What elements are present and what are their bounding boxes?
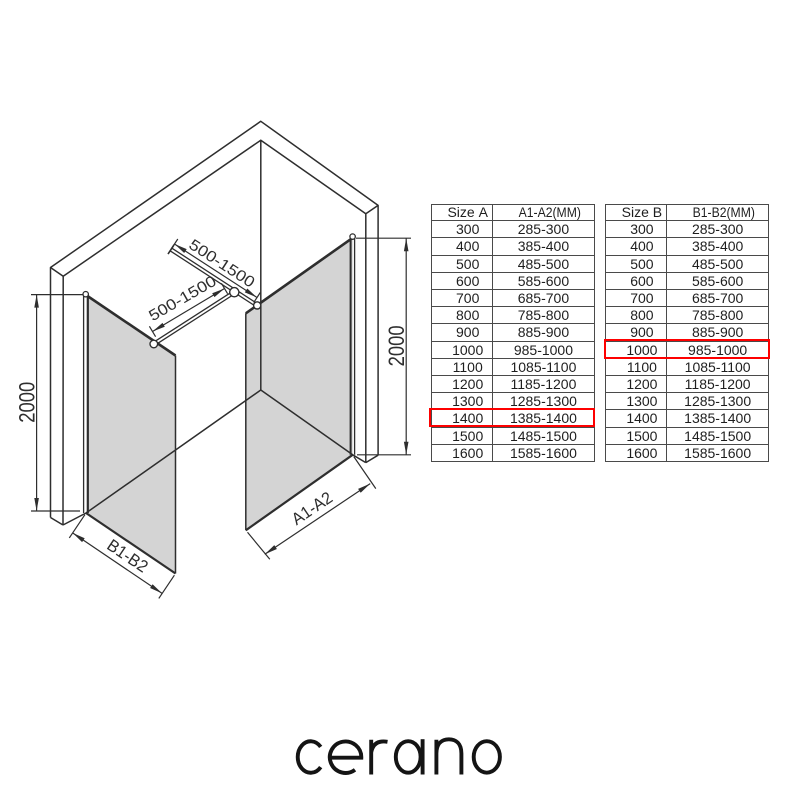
svg-text:500-1500: 500-1500 xyxy=(146,273,220,325)
svg-text:2000: 2000 xyxy=(384,325,409,366)
svg-text:2000: 2000 xyxy=(14,382,39,423)
